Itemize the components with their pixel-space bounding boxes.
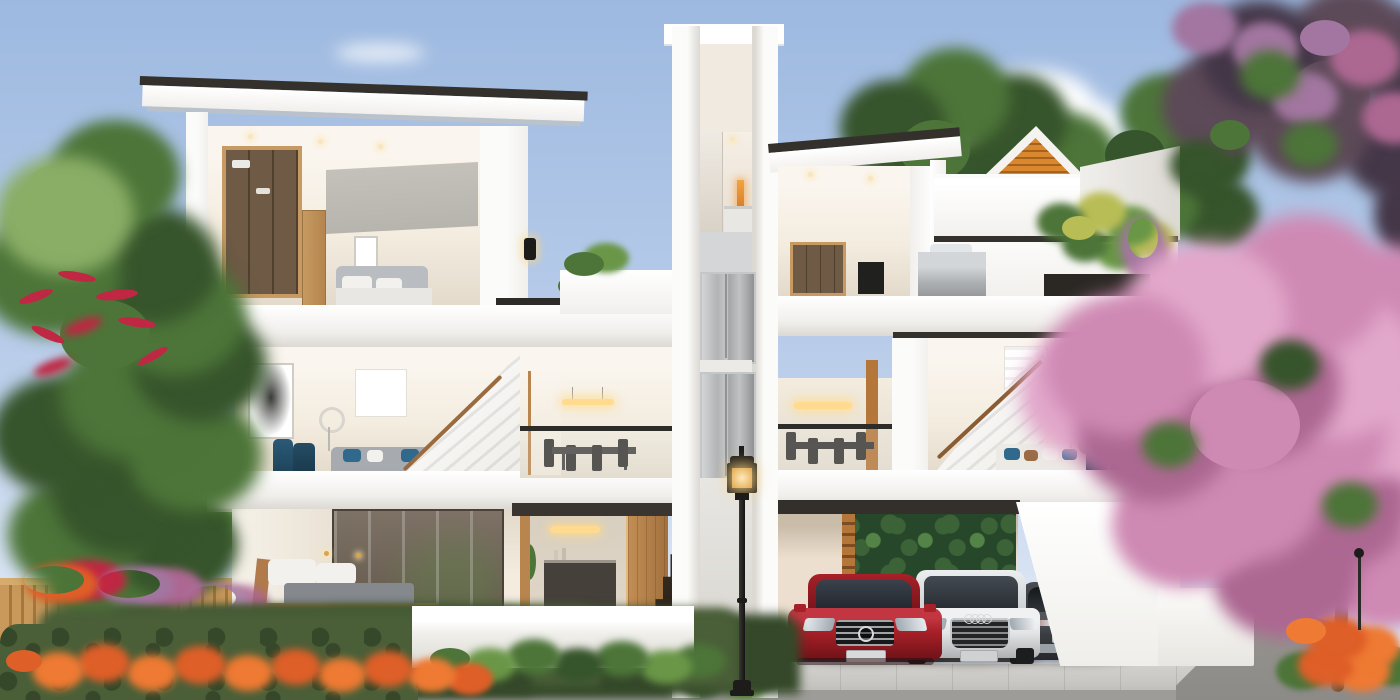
distant-lamp-head	[1354, 548, 1364, 558]
ceiling-spotlight	[730, 137, 735, 142]
garage-soffit-trim	[778, 500, 1020, 514]
white-planter-box	[1158, 588, 1254, 666]
street-lamp	[722, 446, 762, 696]
lamp-pole	[739, 500, 745, 686]
ceiling-spotlight	[868, 176, 873, 181]
wardrobe	[790, 242, 846, 296]
pergola-gable	[982, 126, 1086, 178]
planter-tropical-leaves	[1152, 498, 1192, 532]
lamp-glass-glow	[732, 468, 752, 488]
ceiling-spotlight	[248, 134, 253, 139]
armchair-teal	[273, 439, 293, 475]
sofa-pillow-blue	[343, 449, 361, 462]
corner-pier	[892, 338, 930, 478]
audi-rings-emblem	[964, 614, 994, 623]
ring	[982, 614, 992, 624]
right-second-floor	[778, 338, 1178, 478]
flower-bush-purple	[98, 570, 160, 598]
front-green-strip	[430, 648, 470, 670]
terrace-pier	[480, 126, 528, 310]
wardrobe-shelf-items	[232, 160, 250, 168]
mid-terrace-plants	[564, 252, 604, 276]
elevator-cutaway-room	[700, 132, 752, 232]
elevator-door-split	[725, 274, 727, 358]
mid-dining-room	[520, 347, 672, 478]
entry-soffit	[512, 503, 674, 516]
lamp-roof	[730, 456, 754, 463]
lilac-blossom-clusters	[1300, 20, 1350, 56]
sofa-pillow-white	[1042, 448, 1058, 460]
orange-flower-bed	[6, 650, 42, 672]
wardrobe-glass-panels	[793, 245, 843, 293]
stair-float-cabinet	[355, 369, 407, 417]
car-mirror	[794, 604, 806, 612]
left-top-bedroom	[208, 126, 480, 310]
elevator-band	[700, 360, 752, 372]
ceiling-spotlight	[808, 172, 813, 177]
car-bumper-shadow	[796, 658, 934, 665]
pink-blossom-canopy	[1190, 380, 1300, 470]
mercedes-star-emblem	[858, 626, 874, 642]
elevator-shaft-left-stile	[672, 26, 700, 698]
entry-pendant-light	[550, 526, 600, 533]
tree-base-flower-ring	[1286, 618, 1326, 644]
purple-foliage-tree	[1290, 60, 1370, 130]
armchair-teal	[1086, 438, 1108, 474]
wardrobe-glass-panels	[226, 150, 298, 294]
lamp-collar	[735, 493, 749, 500]
pink-tree-green-accents	[1210, 470, 1250, 500]
bed-pillow	[268, 559, 316, 585]
terrace-palm-plants	[1062, 216, 1096, 240]
bottlebrush-tree-feather-top	[30, 165, 80, 201]
gold-wall-lamp	[356, 553, 361, 558]
kitchen-bottles	[562, 548, 566, 560]
clipped-hedge	[0, 624, 418, 700]
left-living-room	[235, 347, 520, 478]
left-unit-side-wall	[186, 112, 208, 484]
ring-floor-lamp	[319, 407, 345, 433]
wall-art-abstract	[248, 363, 294, 439]
lamp-lantern	[727, 463, 757, 493]
flower-bush-red-orange	[24, 566, 84, 594]
sofa-pillow-white	[367, 450, 383, 462]
architectural-render-scene	[0, 0, 1400, 700]
pendant-light	[794, 402, 852, 409]
car-headlight	[1009, 618, 1038, 630]
ceiling-spotlight	[378, 144, 383, 149]
mirror-panel	[700, 132, 723, 232]
bottlebrush-tree-canopy	[60, 300, 150, 370]
elevator-top-panel	[700, 44, 752, 132]
sofa-pillow-brown	[1024, 450, 1038, 461]
wardrobe-shelf-items	[256, 188, 270, 194]
lamp-base-flare	[730, 690, 754, 696]
ring-floor-lamp	[1062, 408, 1086, 432]
terrace-purple-flowers	[1128, 218, 1158, 258]
lamp-pole-ring	[737, 598, 747, 603]
gold-wall-lamp	[324, 551, 329, 556]
car-wheel	[1016, 648, 1034, 664]
wall-tv	[858, 262, 884, 294]
mid-terrace-parapet	[560, 270, 672, 314]
car-license-plate	[960, 650, 998, 662]
bed-sliver	[724, 206, 752, 232]
flower-bush-purple	[186, 586, 236, 610]
car-red-sedan-front	[788, 574, 942, 666]
bed-pillow	[316, 563, 356, 585]
wardrobe	[222, 146, 302, 298]
ceiling-spotlight	[318, 139, 323, 144]
glass-balustrade	[520, 431, 672, 478]
right-top-bedroom	[778, 166, 934, 298]
kitchen-bottles	[554, 550, 558, 560]
car-mirror	[924, 604, 936, 612]
sofa-pillow-blue	[1062, 449, 1077, 460]
elevator-landing-panel	[700, 232, 752, 272]
right-floor-slab	[778, 296, 1178, 336]
concrete-accent-band	[326, 162, 478, 234]
car-headlight	[894, 618, 927, 631]
lamp-stem	[328, 427, 330, 451]
wall-art-abstract	[1108, 360, 1160, 444]
car-headlight	[802, 618, 835, 631]
sofa-pillow-blue	[1004, 448, 1020, 460]
bedroom-door	[302, 210, 326, 310]
distant-lamp-pole	[1358, 556, 1361, 630]
lamp-stem	[1070, 426, 1072, 448]
pendant-light	[562, 399, 614, 405]
elevator-door-upper	[700, 272, 756, 364]
wall-sconce-lamp	[524, 238, 536, 260]
green-sprigs	[1210, 120, 1250, 150]
